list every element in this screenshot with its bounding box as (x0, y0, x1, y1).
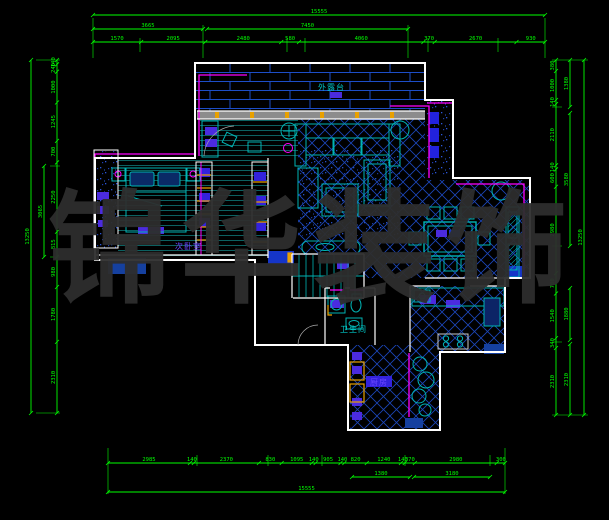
svg-text:3180: 3180 (445, 471, 458, 477)
hall-tile-floor (363, 255, 425, 278)
svg-text:2310: 2310 (550, 375, 556, 388)
bay-box-1 (429, 112, 439, 124)
svg-text:2250: 2250 (51, 190, 57, 203)
svg-text:1880: 1880 (564, 307, 570, 320)
svg-text:240: 240 (51, 63, 57, 73)
cab-box-4 (352, 412, 362, 420)
svg-text:820: 820 (351, 457, 361, 463)
svg-text:370: 370 (424, 36, 434, 42)
svg-text:370: 370 (405, 457, 415, 463)
wardrobe-box-1 (254, 172, 266, 181)
cab-box-1 (352, 352, 362, 360)
svg-text:1540: 1540 (550, 309, 556, 322)
bay-box-3 (429, 146, 439, 158)
terrace-brick-floor (195, 63, 425, 115)
wardrobe-box-3 (254, 222, 266, 231)
svg-text:830: 830 (265, 457, 275, 463)
svg-text:2985: 2985 (142, 457, 155, 463)
basin (346, 318, 362, 329)
door-swing-2 (298, 325, 318, 345)
svg-text:140: 140 (309, 457, 319, 463)
window-band (197, 111, 425, 119)
basin-bowl (349, 321, 359, 327)
svg-text:140: 140 (337, 457, 347, 463)
svg-text:2980: 2980 (550, 223, 556, 236)
svg-text:2480: 2480 (237, 36, 250, 42)
svg-text:4060: 4060 (355, 36, 368, 42)
svg-text:2095: 2095 (167, 36, 180, 42)
svg-text:1245: 1245 (51, 115, 57, 128)
pillow-left (130, 172, 154, 186)
svg-text:140: 140 (187, 457, 197, 463)
svg-text:980: 980 (51, 267, 57, 277)
svg-text:815: 815 (51, 239, 57, 249)
cad-canvas: 1570209524805804060370267093036657450155… (0, 0, 609, 520)
floorplan-svg: 1570209524805804060370267093036657450155… (0, 0, 609, 520)
balcony-chair-3 (98, 220, 108, 227)
table-center-1 (436, 230, 447, 237)
svg-text:1095: 1095 (290, 457, 303, 463)
table-center-2 (449, 230, 460, 237)
svg-text:7450: 7450 (301, 23, 314, 29)
svg-text:1570: 1570 (110, 36, 123, 42)
svg-text:905: 905 (323, 457, 333, 463)
svg-text:3065: 3065 (38, 205, 44, 218)
wardrobe-box-2 (254, 196, 266, 205)
living-rug (300, 150, 400, 236)
terrace-purple-block (330, 92, 342, 98)
fridge (484, 298, 500, 326)
svg-text:13250: 13250 (578, 229, 584, 246)
cabinet-hatch-2 (508, 244, 517, 270)
svg-text:380: 380 (550, 61, 556, 71)
svg-text:600: 600 (550, 173, 556, 183)
svg-text:2310: 2310 (564, 373, 570, 386)
svg-text:2370: 2370 (220, 457, 233, 463)
pillow-right (158, 172, 180, 186)
stair-mark (337, 262, 349, 269)
svg-text:140: 140 (550, 97, 556, 107)
svg-text:2310: 2310 (51, 371, 57, 384)
bay-box-2 (429, 128, 439, 142)
bed-bench (138, 227, 164, 234)
svg-text:1000: 1000 (51, 80, 57, 93)
svg-text:1380: 1380 (564, 77, 570, 90)
svg-text:580: 580 (285, 36, 295, 42)
svg-text:930: 930 (526, 36, 536, 42)
svg-text:15555: 15555 (298, 486, 315, 492)
blue-mass-bottom (405, 418, 423, 428)
cabinet-hatch-1 (508, 212, 517, 238)
svg-text:3665: 3665 (141, 23, 154, 29)
svg-text:700: 700 (51, 147, 57, 157)
svg-text:140: 140 (550, 162, 556, 172)
balcony-chair-2 (97, 206, 109, 214)
balcony-chair-1 (97, 192, 109, 200)
svg-text:15555: 15555 (311, 9, 328, 15)
svg-text:2110: 2110 (550, 128, 556, 141)
svg-text:700: 700 (550, 278, 556, 288)
svg-text:1380: 1380 (374, 471, 387, 477)
desk-box-2 (205, 139, 217, 147)
svg-text:2980: 2980 (449, 457, 462, 463)
svg-text:340: 340 (550, 338, 556, 348)
kitchen-appliance-1 (420, 295, 436, 304)
svg-text:1780: 1780 (51, 308, 57, 321)
bottom-table (366, 376, 392, 387)
wc-bowl (351, 298, 361, 312)
kitchen-appliance-2 (446, 300, 460, 308)
svg-text:3580: 3580 (564, 173, 570, 186)
svg-text:2670: 2670 (469, 36, 482, 42)
cab-box-2 (352, 366, 362, 374)
svg-text:1000: 1000 (550, 79, 556, 92)
svg-text:300: 300 (496, 457, 506, 463)
svg-text:13250: 13250 (25, 228, 31, 245)
svg-text:1240: 1240 (377, 457, 390, 463)
